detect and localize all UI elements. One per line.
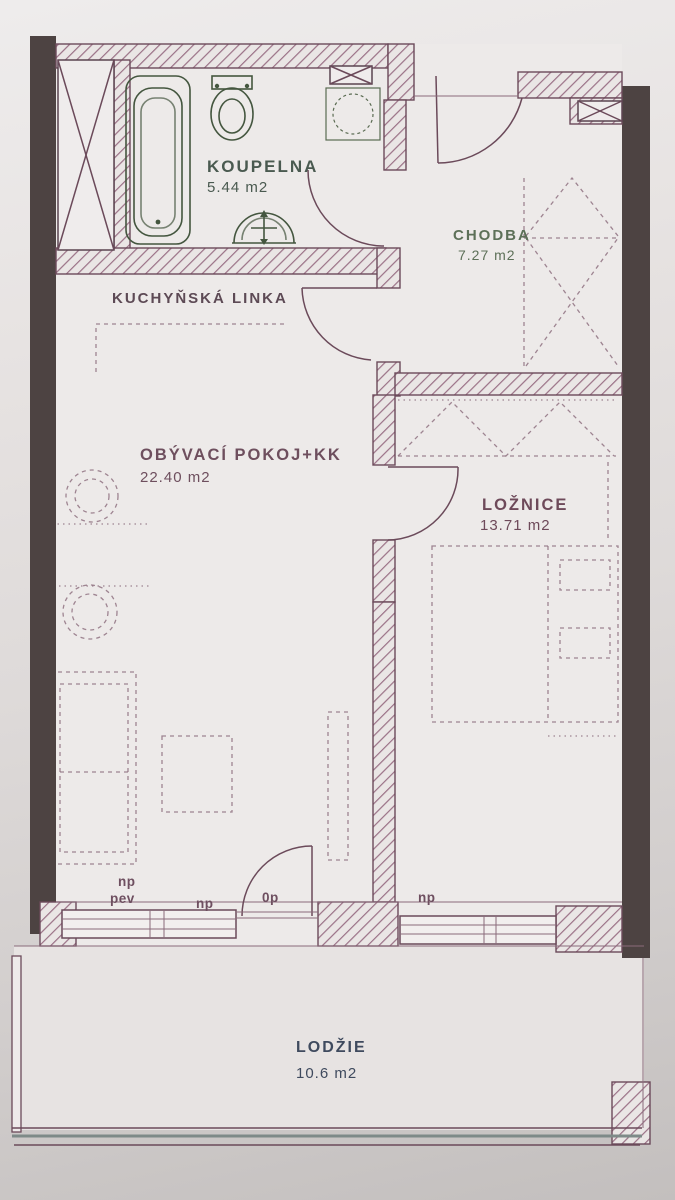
loznice-area: 13.71 m2	[480, 517, 551, 534]
loggia-floor	[14, 946, 644, 1130]
floorplan-drawing: KOUPELNA 5.44 m2 CHODBA 7.27 m2 KUCHYŇSK…	[0, 0, 675, 1200]
lodzie-name: LODŽIE	[296, 1037, 367, 1056]
living-window-pev-label: pev	[110, 891, 135, 906]
koupelna-name: KOUPELNA	[207, 157, 318, 176]
floorplan-photo: KOUPELNA 5.44 m2 CHODBA 7.27 m2 KUCHYŇSK…	[0, 0, 675, 1200]
bedroom-window-np-label: np	[418, 890, 436, 905]
window-living-room	[62, 910, 236, 938]
lodzie-area: 10.6 m2	[296, 1065, 357, 1082]
chodba-name: CHODBA	[453, 227, 531, 244]
chodba-area: 7.27 m2	[458, 247, 516, 263]
kitchen-unit-label: KUCHYŇSKÁ LINKA	[112, 289, 288, 307]
loznice-name: LOŽNICE	[482, 495, 568, 514]
vent-box-hall	[578, 101, 622, 121]
obyvaci-name: OBÝVACÍ POKOJ+KK	[140, 445, 342, 464]
window-bedroom	[400, 916, 556, 944]
living-window-np-label: np	[118, 874, 136, 889]
vent-box-bathroom	[330, 66, 372, 84]
installation-shaft	[58, 60, 114, 250]
koupelna-area: 5.44 m2	[207, 179, 268, 196]
obyvaci-area: 22.40 m2	[140, 469, 211, 486]
structural-wall-left	[30, 36, 56, 934]
living-window-mid-np-label: np	[196, 896, 214, 911]
balcony-door-0p-label: 0p	[262, 890, 279, 905]
structural-wall-right	[622, 86, 650, 958]
